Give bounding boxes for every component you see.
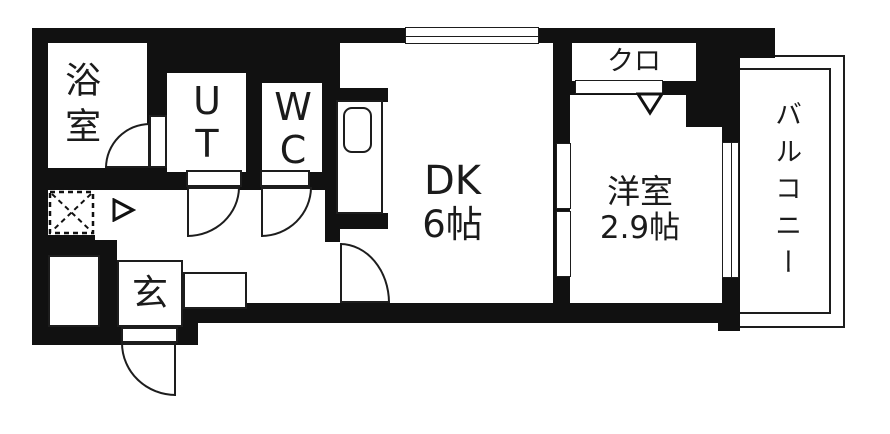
dk-door-opening (325, 242, 340, 303)
kitchen-sink (343, 107, 372, 153)
wall-top-right (740, 28, 775, 58)
dk-window (405, 27, 539, 44)
western-room-label: 洋室 2.9帖 (565, 162, 715, 257)
western-room-window (722, 142, 739, 278)
utility-label: U T (172, 78, 242, 168)
dk-name: DK (424, 159, 481, 204)
direction-triangle-icon (112, 198, 136, 222)
entrance-label: 玄 (124, 272, 176, 317)
entrance-door-arc (121, 343, 176, 396)
bathroom-label: 浴室 (55, 52, 103, 162)
washing-machine-space (48, 190, 95, 235)
wall-balcony-stub (718, 323, 740, 331)
entrance-step-box (183, 272, 247, 309)
closet-label: クロ (580, 45, 688, 79)
bathroom-door-leaf (149, 115, 167, 168)
dk-size: 6帖 (422, 204, 483, 245)
dk-label: DK 6帖 (380, 150, 525, 255)
western-room-name: 洋室 (607, 174, 673, 211)
storage-box (48, 255, 100, 327)
kitchen-wall-stub-bottom (325, 213, 388, 229)
western-room-corner-wall (686, 93, 740, 127)
entrance-door-leaf (121, 327, 178, 343)
balcony-label: バルコニー (765, 80, 805, 305)
floorplan: 浴室 U T W C DK 6帖 洋室 2.9帖 クロ 玄 バルコニー (0, 0, 890, 434)
western-room-size: 2.9帖 (600, 211, 680, 246)
toilet-label: W C (258, 86, 328, 172)
utility-door-leaf (186, 170, 242, 187)
closet-door-triangle-icon (636, 92, 664, 116)
toilet-door-leaf (260, 170, 310, 187)
